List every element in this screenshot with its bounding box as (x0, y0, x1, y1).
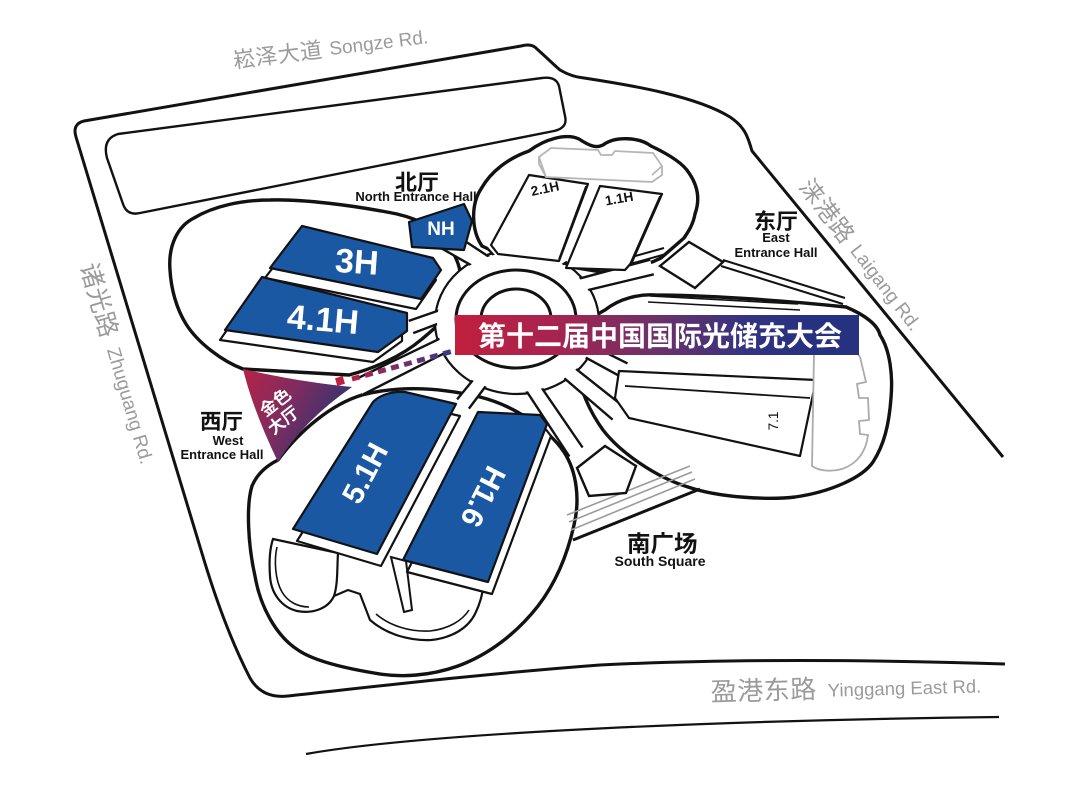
svg-text:Entrance Hall: Entrance Hall (180, 447, 263, 462)
svg-text:Entrance Hall: Entrance Hall (734, 245, 817, 260)
svg-text:4.1H: 4.1H (286, 298, 361, 342)
svg-text:West: West (213, 433, 244, 448)
svg-text:North Entrance Hall: North Entrance Hall (355, 189, 476, 204)
svg-text:NH: NH (427, 219, 454, 240)
svg-text:Yinggang East Rd.: Yinggang East Rd. (827, 675, 981, 700)
svg-text:East: East (762, 230, 790, 245)
svg-text:3H: 3H (334, 242, 380, 283)
svg-text:7.1: 7.1 (766, 412, 781, 431)
svg-text:South Square: South Square (614, 553, 705, 569)
